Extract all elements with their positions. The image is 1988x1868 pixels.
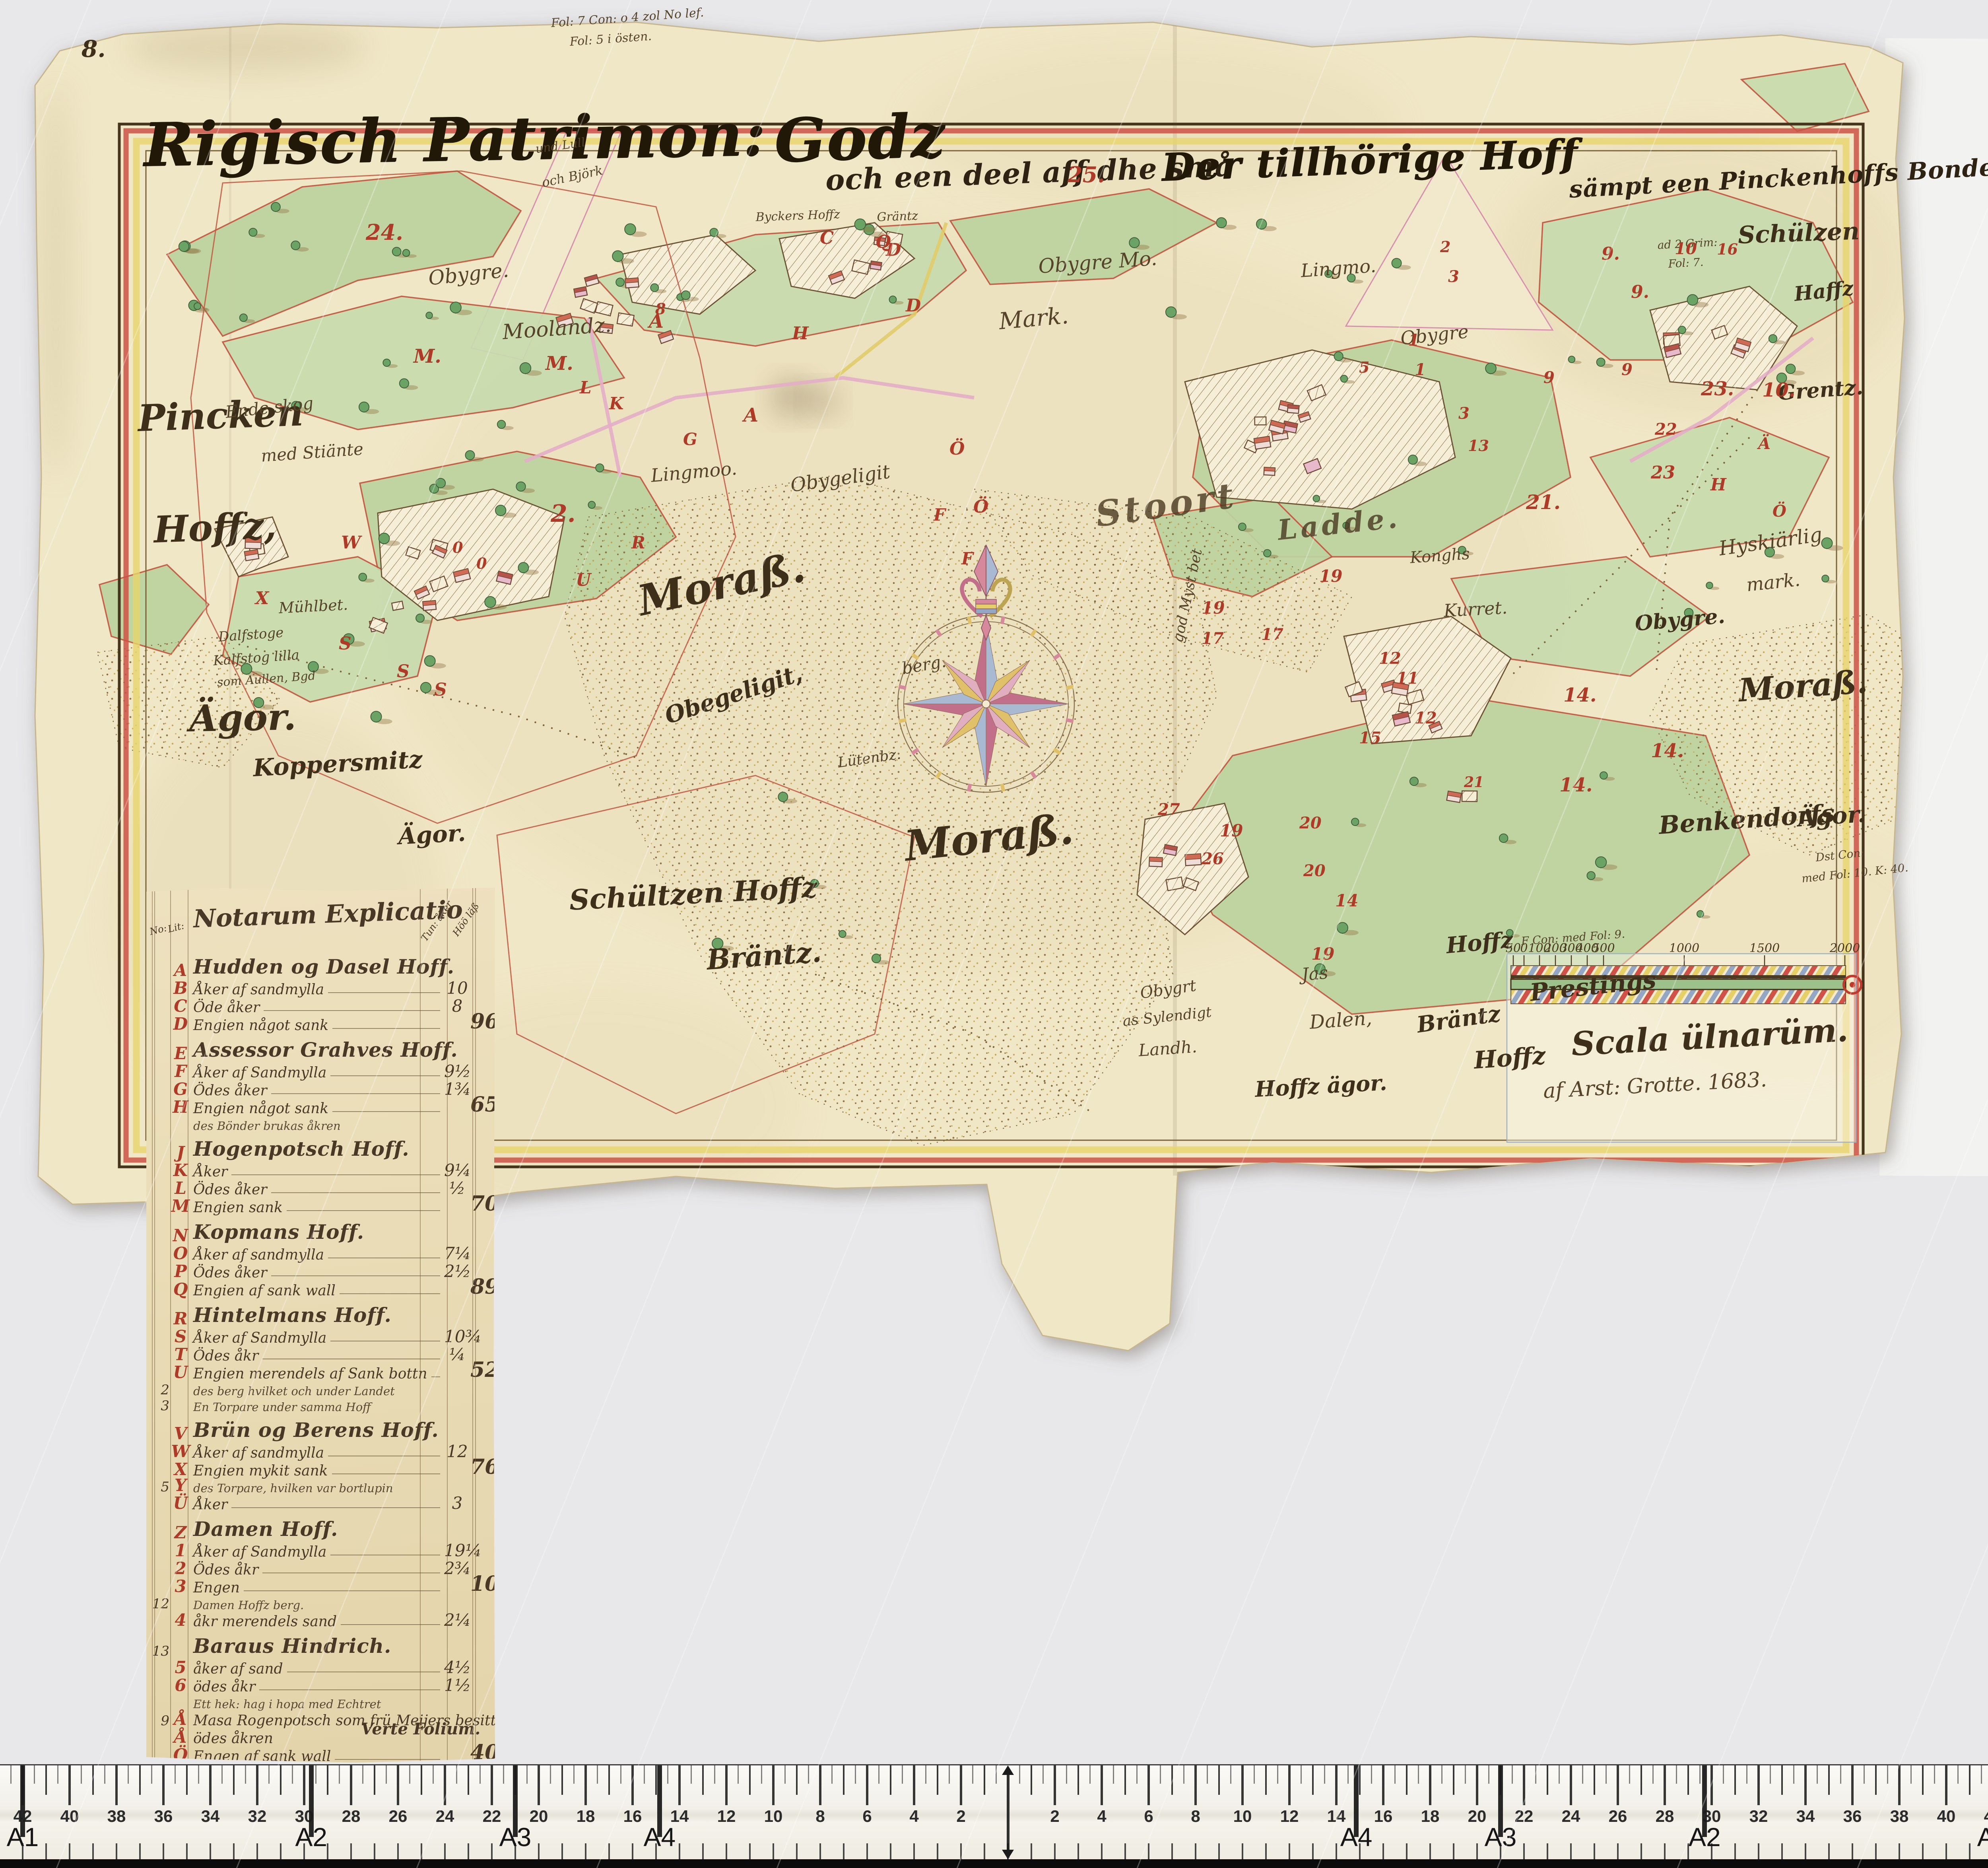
- legend-column-rule: [447, 888, 448, 1763]
- ruler-tick: [773, 1843, 774, 1859]
- ruler-tick: [1606, 1765, 1607, 1784]
- ruler-tick: [1124, 1843, 1126, 1859]
- ruler-tick: [538, 1843, 540, 1859]
- legend-row: XEngien mykit sank76: [146, 1461, 495, 1479]
- ruler-tick: [749, 1765, 751, 1795]
- ruler-tick: [1171, 1843, 1173, 1859]
- legend-column-rule: [472, 888, 473, 1763]
- house-icon: [1166, 877, 1183, 890]
- ruler-tick: [1922, 1843, 1924, 1859]
- ruler-tick: [831, 1765, 833, 1784]
- ruler-tick: [1945, 1765, 1947, 1805]
- ruler-tick: [57, 1765, 58, 1784]
- ruler-tick: [890, 1843, 891, 1859]
- ruler-tick: [878, 1765, 879, 1784]
- ruler-tick: [34, 1765, 35, 1784]
- ruler-tick: [749, 1843, 751, 1859]
- ruler-tick: [68, 1765, 71, 1805]
- ruler-tick: [397, 1765, 399, 1805]
- ruler-number: 16: [623, 1807, 642, 1826]
- ruler-tick: [1207, 1765, 1208, 1784]
- ruler-tick: [1945, 1843, 1947, 1859]
- ruler-tick: [175, 1765, 176, 1784]
- ruler-tick: [1265, 1765, 1267, 1795]
- ruler-tick: [1770, 1765, 1771, 1784]
- house-icon: [1287, 405, 1299, 414]
- ruler-tick: [655, 1765, 657, 1795]
- ruler-number: 12: [1280, 1807, 1299, 1826]
- ruler-tick: [1148, 1843, 1149, 1859]
- ruler-tick: [1676, 1765, 1677, 1784]
- ruler-tick: [1429, 1765, 1431, 1805]
- ruler-number: 34: [201, 1807, 220, 1826]
- legend-row: UEngien merendels af Sank bottn52: [146, 1364, 495, 1382]
- ruler-tick: [996, 1765, 997, 1784]
- ruler-tick: [245, 1765, 246, 1784]
- ruler-tick: [937, 1843, 938, 1859]
- ruler-number: 12: [717, 1807, 736, 1826]
- ruler-tick: [937, 1765, 938, 1795]
- scale-tick-label: 2000: [1829, 941, 1860, 955]
- house-icon: [625, 278, 639, 288]
- ruler-tick: [1288, 1765, 1291, 1805]
- ruler-tick: [256, 1765, 258, 1805]
- ruler-tick: [1335, 1765, 1338, 1805]
- ruler-tick: [1523, 1843, 1525, 1859]
- ruler-tick: [1570, 1843, 1572, 1859]
- ruler-format-mark: A4: [1340, 1822, 1373, 1852]
- legend-row: CÖde åker8: [146, 998, 495, 1016]
- ruler-tick: [984, 1843, 985, 1859]
- legend-row: TÖdes åkr¼: [146, 1346, 495, 1364]
- ruler-tick: [1781, 1765, 1783, 1795]
- ruler-number: 2: [956, 1807, 965, 1826]
- legend-row: 1Åker af Sandmylla19¼: [146, 1542, 495, 1560]
- ruler-number: 26: [389, 1807, 408, 1826]
- legend-row: 2des berg hvilket och under Landet: [146, 1382, 495, 1398]
- ruler-number: 28: [1656, 1807, 1674, 1826]
- ruler-tick: [210, 1843, 211, 1859]
- ruler-tick: [585, 1843, 586, 1859]
- ruler-tick: [1547, 1765, 1548, 1795]
- ruler-tick: [561, 1765, 563, 1795]
- ruler-tick: [1007, 1769, 1010, 1858]
- ruler-tick: [1171, 1765, 1173, 1795]
- ruler-tick: [913, 1843, 915, 1859]
- ruler-tick: [1394, 1765, 1396, 1784]
- ruler-tick: [1336, 1843, 1337, 1859]
- ruler-tick: [303, 1765, 305, 1805]
- ruler-number: 4: [909, 1807, 918, 1826]
- ruler-zero-arrow: [1002, 1765, 1014, 1775]
- legend-column-rule: [475, 888, 476, 1763]
- legend-row: 3Engen106: [146, 1578, 495, 1596]
- ruler-tick: [631, 1765, 634, 1805]
- ruler-tick: [925, 1765, 926, 1784]
- ruler-tick: [468, 1765, 469, 1795]
- ruler-tick: [1875, 1843, 1877, 1859]
- ruler-tick: [1828, 1843, 1830, 1859]
- ruler-tick: [315, 1765, 316, 1784]
- ruler-tick: [456, 1765, 457, 1784]
- legend-section-header: JHogenpotsch Hoff.: [146, 1133, 495, 1162]
- ruler-number: 36: [154, 1807, 173, 1826]
- ruler-number: 24: [1562, 1807, 1580, 1826]
- ruler-tick: [526, 1765, 528, 1784]
- ruler-tick: [374, 1765, 375, 1795]
- ruler-tick: [468, 1843, 469, 1859]
- house-icon: [885, 231, 903, 245]
- ruler-tick: [1147, 1765, 1150, 1805]
- ruler-tick: [1664, 1843, 1666, 1859]
- ruler-tick: [1746, 1765, 1747, 1784]
- ruler-zero-arrow: [1002, 1850, 1014, 1859]
- ruler-tick: [1077, 1843, 1079, 1859]
- ruler-tick: [1371, 1765, 1372, 1784]
- legend-row: 4åkr merendels sand2¼: [146, 1612, 495, 1630]
- ruler-number: 22: [483, 1807, 501, 1826]
- ruler-tick: [1828, 1765, 1830, 1795]
- legend-row: 2Ödes åkr2¾: [146, 1560, 495, 1578]
- legend-section-header: VBrün og Berens Hoff.: [146, 1414, 495, 1443]
- ruler-tick: [1453, 1765, 1454, 1795]
- ruler-tick: [890, 1765, 891, 1795]
- house-icon: [1392, 682, 1409, 696]
- legend-section-header: AHudden og Dasel Hoff.: [146, 951, 495, 980]
- ruler-tick: [139, 1843, 141, 1859]
- legend-column-rule: [154, 888, 155, 1763]
- ruler-number: 20: [1468, 1807, 1487, 1826]
- legend-section-header: ZDamen Hoff.: [146, 1513, 495, 1542]
- ruler-number: 16: [1374, 1807, 1393, 1826]
- legend-section-header: EAssessor Grahves Hoff.: [146, 1034, 495, 1063]
- legend-col-no: No:: [148, 922, 168, 937]
- legend-section-header: RHintelmans Hoff.: [146, 1299, 495, 1328]
- ruler-tick: [1465, 1765, 1466, 1784]
- legend-row: LÖdes åker½: [146, 1180, 495, 1198]
- ruler-tick: [139, 1765, 141, 1795]
- house-icon: [874, 237, 885, 246]
- legend-row: 12Damen Hoffz berg.: [146, 1596, 495, 1612]
- legend-row: GÖdes åker1¾: [146, 1081, 495, 1099]
- house-icon: [245, 537, 262, 549]
- ruler-tick: [1852, 1843, 1853, 1859]
- ruler-tick: [949, 1765, 950, 1784]
- ruler-tick: [10, 1765, 12, 1784]
- ruler-tick: [608, 1843, 610, 1859]
- ruler-tick: [784, 1765, 786, 1784]
- ruler-tick: [491, 1765, 493, 1805]
- ruler-tick: [561, 1843, 563, 1859]
- ruler-number: 8: [815, 1807, 825, 1826]
- house-icon: [392, 601, 404, 610]
- ruler-tick: [444, 1843, 446, 1859]
- ruler-tick: [1805, 1843, 1806, 1859]
- ruler-number: 38: [107, 1807, 126, 1826]
- ruler-tick: [1957, 1765, 1959, 1784]
- ruler-tick: [1218, 1765, 1220, 1795]
- ruler-tick: [855, 1765, 856, 1784]
- ruler-number: 10: [764, 1807, 783, 1826]
- ruler-tick: [1804, 1765, 1807, 1805]
- ruler-tick: [350, 1843, 352, 1859]
- scale-bar: 500100200300400500100015002000: [1506, 941, 1861, 1142]
- ruler-tick: [128, 1765, 129, 1784]
- legend-column-rule: [170, 888, 171, 1763]
- ruler-tick: [1594, 1843, 1595, 1859]
- ruler-tick: [1254, 1765, 1255, 1784]
- ruler-number: 18: [1421, 1807, 1440, 1826]
- ruler-tick: [808, 1765, 809, 1784]
- ruler-tick: [819, 1765, 821, 1805]
- ruler-tick: [796, 1765, 798, 1795]
- ruler-tick: [960, 1765, 962, 1805]
- ruler-tick: [1875, 1765, 1877, 1795]
- ruler-number: 38: [1890, 1807, 1909, 1826]
- ruler-format-mark: A3: [499, 1822, 532, 1852]
- ruler-tick: [1699, 1765, 1701, 1784]
- ruler-tick: [339, 1765, 340, 1784]
- ruler-tick: [960, 1843, 962, 1859]
- ruler-number: 10: [1233, 1807, 1252, 1826]
- ruler-tick: [1242, 1843, 1243, 1859]
- ruler-tick: [843, 1765, 845, 1795]
- ruler-number: 22: [1515, 1807, 1534, 1826]
- ruler-tick: [198, 1765, 199, 1784]
- ruler-tick: [725, 1765, 728, 1805]
- ruler-tick: [1887, 1765, 1888, 1784]
- ruler-number: 4: [1097, 1807, 1106, 1826]
- ruler-tick: [327, 1765, 328, 1795]
- ruler-tick: [397, 1843, 399, 1859]
- house-icon: [1185, 854, 1201, 866]
- ruler-tick: [409, 1765, 410, 1784]
- ruler-tick: [1359, 1765, 1361, 1795]
- ruler-tick: [1981, 1765, 1982, 1784]
- ruler-tick: [584, 1765, 587, 1805]
- ruler-number: 32: [248, 1807, 267, 1826]
- ruler-tick: [1582, 1765, 1583, 1784]
- ruler-tick: [1429, 1843, 1431, 1859]
- ruler-tick: [1781, 1843, 1783, 1859]
- ruler-tick: [1899, 1843, 1900, 1859]
- ruler-number: 36: [1843, 1807, 1862, 1826]
- ruler-tick: [81, 1765, 82, 1784]
- legend-row: HEngien något sank65: [146, 1099, 495, 1117]
- ruler-tick: [1031, 1843, 1032, 1859]
- scale-tick-label: 50: [1506, 941, 1521, 955]
- house-icon: [1255, 417, 1266, 425]
- ruler-tick: [1664, 1765, 1666, 1805]
- legend-row: WÅker af sandmylla12: [146, 1443, 495, 1461]
- ruler-tick: [1277, 1765, 1278, 1784]
- ruler-tick: [151, 1765, 152, 1784]
- ruler-tick: [866, 1843, 868, 1859]
- house-icon: [1254, 436, 1271, 449]
- ruler-number: 2: [1050, 1807, 1059, 1826]
- legend-row: DEngien något sank96: [146, 1016, 495, 1034]
- ruler-tick: [92, 1765, 94, 1795]
- ruler-tick: [1523, 1765, 1525, 1805]
- house-icon: [600, 323, 613, 334]
- ruler-tick: [280, 1765, 282, 1795]
- legend-row: KÅker9¼: [146, 1162, 495, 1180]
- ruler-tick: [843, 1843, 845, 1859]
- legend-row: Ett hek: hag i hopa med Echtret: [146, 1695, 495, 1711]
- ruler-format-mark: A4: [643, 1822, 676, 1852]
- legend-row: OÅker af sandmylla7¼: [146, 1245, 495, 1263]
- legend-row: PÖdes åker2½: [146, 1263, 495, 1281]
- ruler-tick: [444, 1765, 446, 1805]
- ruler-tick: [1019, 1765, 1020, 1784]
- ruler-tick: [1617, 1843, 1619, 1859]
- photo-table-edge: [0, 1859, 1988, 1868]
- ruler-tick: [796, 1843, 798, 1859]
- ruler-tick: [913, 1765, 915, 1805]
- ruler-tick: [772, 1765, 775, 1805]
- ruler-tick: [1629, 1765, 1630, 1784]
- ruler-tick: [1218, 1843, 1220, 1859]
- house-icon: [574, 287, 587, 297]
- ruler-tick: [1324, 1765, 1325, 1784]
- ruler-tick: [1054, 1765, 1056, 1805]
- ruler-tick: [538, 1765, 540, 1805]
- ruler-tick: [1758, 1843, 1759, 1859]
- ruler-tick: [1194, 1765, 1197, 1805]
- ruler-tick: [350, 1765, 352, 1805]
- ruler-tick: [421, 1765, 422, 1795]
- legend-row: MEngien sank70: [146, 1198, 495, 1216]
- ruler-number: 18: [577, 1807, 595, 1826]
- scale-tick-label: 1000: [1669, 941, 1699, 955]
- ruler-number: 26: [1609, 1807, 1627, 1826]
- ruler-number: 40: [1937, 1807, 1956, 1826]
- ruler-tick: [679, 1843, 680, 1859]
- ruler-tick: [573, 1765, 575, 1784]
- ruler-tick: [691, 1765, 692, 1784]
- ruler-tick: [1241, 1765, 1244, 1805]
- legend-row: SÅker af Sandmylla10¾: [146, 1328, 495, 1346]
- legend-row: ÜÅker3: [146, 1495, 495, 1513]
- ruler-tick: [1757, 1765, 1760, 1805]
- ruler-tick: [644, 1765, 645, 1784]
- house-icon: [1149, 857, 1162, 867]
- ruler-tick: [1382, 1765, 1384, 1805]
- ruler-tick: [186, 1765, 188, 1795]
- ruler-tick: [386, 1765, 387, 1784]
- ruler-tick: [1734, 1843, 1736, 1859]
- ruler-tick: [421, 1843, 422, 1859]
- ruler-tick: [1488, 1765, 1489, 1784]
- legend-section-header: NKopmans Hoff.: [146, 1216, 495, 1245]
- ruler-tick: [1934, 1765, 1935, 1784]
- legend-footer: Verte Folium.: [361, 1720, 480, 1738]
- ruler-tick: [1851, 1765, 1854, 1805]
- house-icon: [1462, 791, 1477, 802]
- ruler-tick: [233, 1843, 235, 1859]
- legend-row: 3En Torpare under samma Hoff: [146, 1398, 495, 1414]
- ruler-tick: [1710, 1765, 1713, 1805]
- ruler-tick: [374, 1843, 375, 1859]
- ruler-tick: [1512, 1765, 1513, 1784]
- legend-col-lit: Lit:: [167, 920, 185, 935]
- ruler-tick: [1723, 1765, 1724, 1784]
- ruler-tick: [866, 1765, 868, 1805]
- legend-column-rule: [152, 888, 153, 1763]
- ruler-tick: [1043, 1765, 1044, 1784]
- ruler-number: 40: [60, 1807, 79, 1826]
- house-icon: [617, 313, 634, 326]
- ruler-tick: [1382, 1843, 1384, 1859]
- ruler-number: 6: [1144, 1807, 1153, 1826]
- ruler-number: 34: [1796, 1807, 1815, 1826]
- ruler-tick: [268, 1765, 270, 1784]
- ruler-tick: [1301, 1765, 1302, 1784]
- ruler-tick: [491, 1843, 493, 1859]
- ruler-tick: [1418, 1765, 1419, 1784]
- ruler-tick: [597, 1765, 598, 1784]
- ruler-tick: [1910, 1765, 1912, 1784]
- ruler-tick: [1077, 1765, 1079, 1795]
- ruler-tick: [1476, 1765, 1478, 1805]
- scale-tick-label: 1500: [1749, 941, 1780, 955]
- house-icon: [1163, 845, 1177, 856]
- ruler-tick: [738, 1765, 739, 1784]
- ruler-tick: [1406, 1765, 1408, 1795]
- ruler-tick: [163, 1843, 164, 1859]
- house-icon: [1264, 467, 1275, 476]
- ruler-tick: [92, 1843, 94, 1859]
- ruler-tick: [972, 1765, 973, 1784]
- ruler-tick: [1640, 1765, 1642, 1795]
- legend-row: 5Ydes Torpare, hvilken var bortlupin: [146, 1479, 495, 1495]
- legend-column-rule: [188, 888, 188, 1763]
- ruler-tick: [1922, 1765, 1924, 1795]
- ruler-tick: [608, 1765, 610, 1795]
- ruler-format-mark: A1: [7, 1822, 39, 1852]
- ruler-tick: [45, 1765, 47, 1795]
- legend-row: QEngien af sank wall89: [146, 1281, 495, 1299]
- ruler-tick: [503, 1765, 504, 1784]
- ruler-tick: [256, 1843, 258, 1859]
- ruler-tick: [233, 1765, 235, 1795]
- ruler-tick: [362, 1765, 363, 1784]
- ruler-tick: [115, 1765, 118, 1805]
- ruler-tick: [1898, 1765, 1901, 1805]
- photo-scan-stage: 500100200300400500100015002000 Scala üln…: [0, 0, 1988, 1868]
- ruler-format-mark: A2: [295, 1822, 327, 1852]
- scale-tick-label: 500: [1592, 941, 1615, 955]
- ruler-tick: [1840, 1765, 1841, 1784]
- legend-title: Notarum Explicatio: [193, 895, 463, 933]
- ruler-tick: [45, 1843, 47, 1859]
- ruler-tick: [1066, 1765, 1067, 1784]
- legend-row: 6ödes åkr1½: [146, 1677, 495, 1695]
- ruler-number: 24: [436, 1807, 454, 1826]
- ruler-number: 6: [862, 1807, 872, 1826]
- ruler-tick: [1594, 1765, 1595, 1795]
- ruler-tick: [1406, 1843, 1408, 1859]
- ruler-tick: [1476, 1843, 1478, 1859]
- ruler-tick: [714, 1765, 715, 1784]
- legend-column-rule: [420, 888, 421, 1763]
- ruler-format-mark: A2: [1689, 1822, 1721, 1852]
- ruler-tick: [1289, 1843, 1290, 1859]
- ruler-tick: [1124, 1765, 1126, 1795]
- ruler-number: 32: [1749, 1807, 1768, 1826]
- ruler-tick: [620, 1765, 621, 1784]
- ruler-tick: [1793, 1765, 1794, 1784]
